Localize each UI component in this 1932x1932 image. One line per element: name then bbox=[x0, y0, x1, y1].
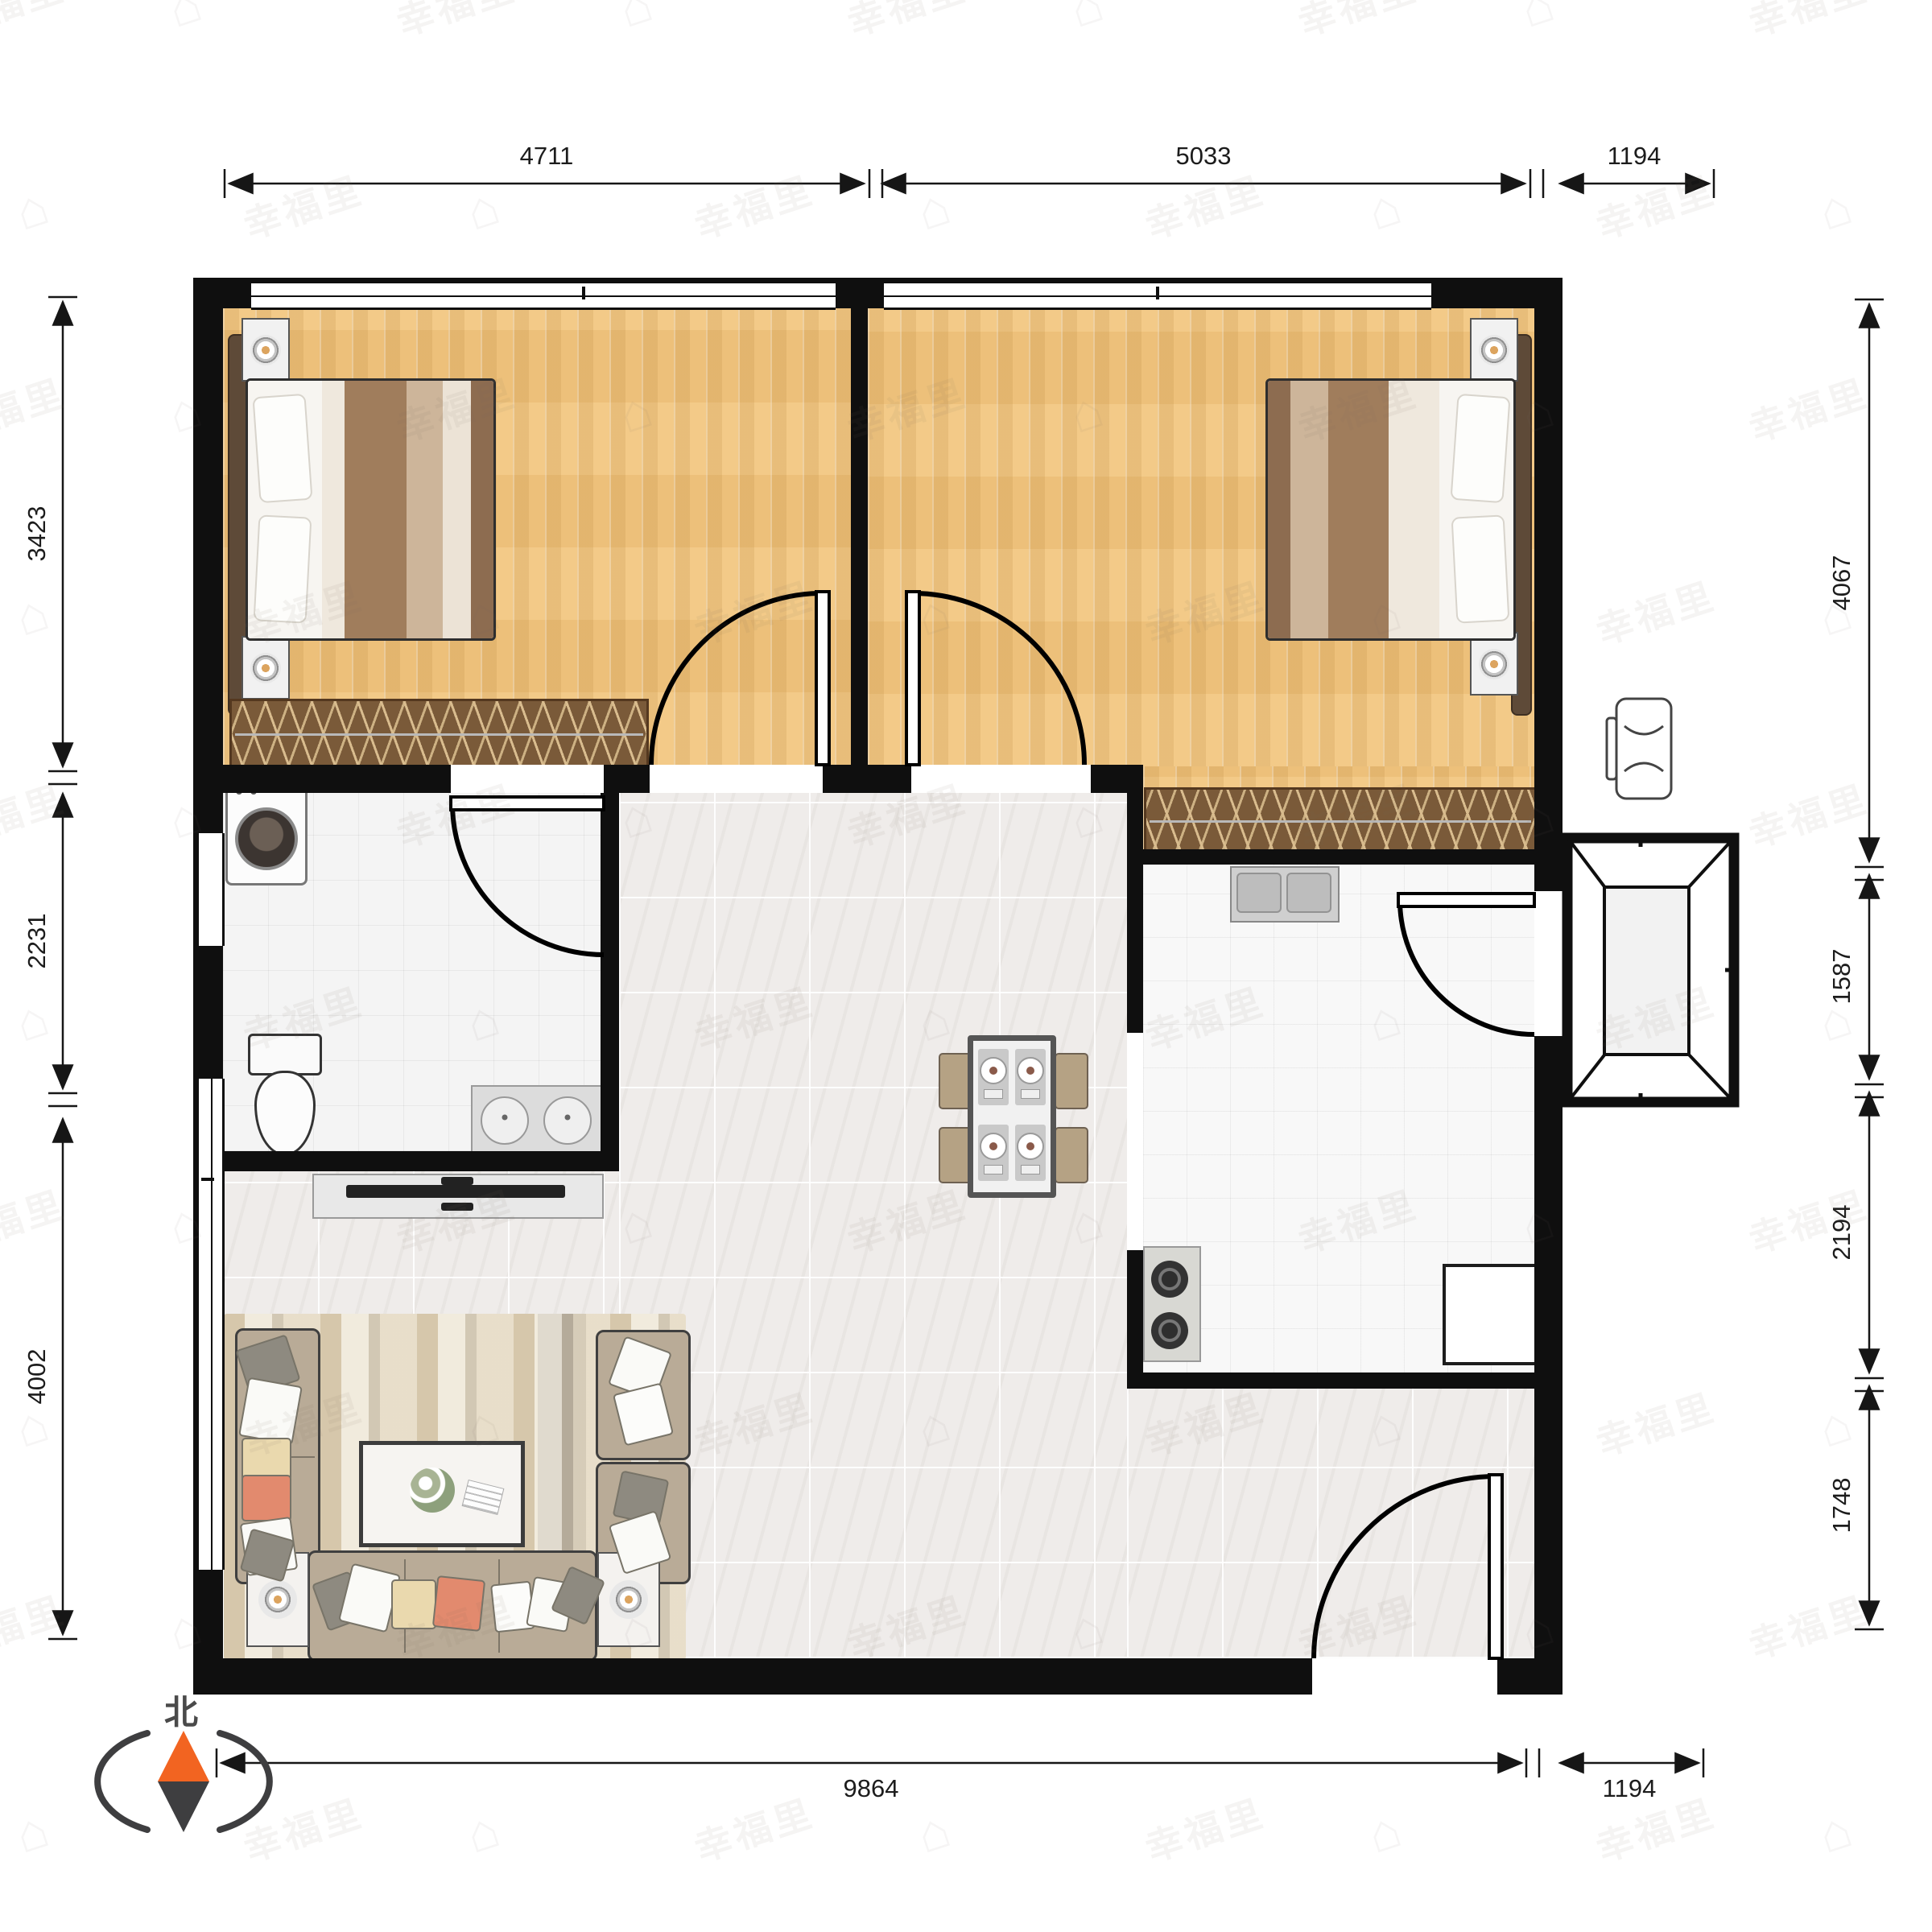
watermark-text: 幸福里 bbox=[1138, 161, 1272, 250]
watermark-logo-icon: ⌂ bbox=[1811, 1392, 1863, 1459]
plate-icon bbox=[1017, 1057, 1044, 1084]
dim-label-right-4: 1748 bbox=[1827, 1478, 1856, 1534]
watermark-text: 幸福里 bbox=[1742, 364, 1876, 452]
watermark-text: 幸福里 bbox=[1742, 1581, 1876, 1670]
watermark-text: 幸福里 bbox=[1589, 972, 1723, 1061]
watermark-text: 幸福里 bbox=[1589, 567, 1723, 655]
throw-pillow bbox=[238, 1377, 303, 1446]
bed-1-nightstand-bottom bbox=[242, 636, 290, 700]
toilet-tank bbox=[248, 1034, 322, 1075]
lamp-icon bbox=[258, 1580, 297, 1619]
bedroom-1-door-opening bbox=[650, 765, 823, 793]
compass-south-needle bbox=[158, 1781, 209, 1832]
compass bbox=[97, 1731, 270, 1832]
watermark-text: 幸福里 bbox=[1589, 161, 1723, 250]
watermark-text: 幸福里 bbox=[687, 1784, 821, 1872]
pillow bbox=[1451, 514, 1510, 623]
lamp-icon bbox=[609, 1580, 648, 1619]
dim-label-right-1: 4067 bbox=[1827, 555, 1856, 611]
entry-floor bbox=[1127, 1389, 1534, 1658]
placemat bbox=[978, 1049, 1009, 1105]
dim-label-left-2: 2231 bbox=[23, 914, 52, 969]
dimension-lines-right bbox=[1855, 299, 1884, 1629]
dining-chair bbox=[1055, 1053, 1088, 1109]
watermark-text: 幸福里 bbox=[390, 0, 523, 47]
pillow bbox=[254, 514, 312, 623]
bed-2-nightstand-bottom bbox=[1470, 632, 1518, 696]
wall-bedroom-divider bbox=[851, 278, 868, 781]
north-label: 北 bbox=[164, 1686, 198, 1735]
lamp-icon bbox=[1479, 649, 1509, 679]
window-glass-line bbox=[251, 295, 836, 297]
wall-bathroom-bottom bbox=[193, 1151, 619, 1171]
kitchen-pass-opening bbox=[1127, 1030, 1143, 1253]
dim-label-bottom-2: 1194 bbox=[1603, 1774, 1657, 1803]
watermark-text: 幸福里 bbox=[0, 770, 72, 858]
bed-2-nightstand-top bbox=[1470, 318, 1518, 382]
window-mullion bbox=[201, 1178, 214, 1181]
cup-icon bbox=[1021, 1089, 1040, 1099]
sink-basin bbox=[481, 1096, 529, 1145]
cup-icon bbox=[1021, 1165, 1040, 1174]
placemat bbox=[978, 1125, 1009, 1181]
watermark-text: 幸福里 bbox=[237, 1784, 370, 1872]
watermark-logo-icon: ⌂ bbox=[8, 986, 60, 1054]
watermark-logo-icon: ⌂ bbox=[459, 175, 510, 242]
watermark-text: 幸福里 bbox=[1589, 1378, 1723, 1467]
hallway-floor bbox=[619, 793, 1127, 1658]
wardrobe-rod bbox=[235, 733, 643, 736]
gas-stove bbox=[1143, 1246, 1201, 1362]
watermark-logo-icon: ⌂ bbox=[910, 1798, 961, 1865]
placemat bbox=[1015, 1125, 1046, 1181]
dim-label-right-3: 2194 bbox=[1827, 1205, 1856, 1261]
watermark-logo-icon: ⌂ bbox=[8, 1798, 60, 1865]
lamp-icon bbox=[1479, 335, 1509, 365]
watermark-logo-icon: ⌂ bbox=[1513, 0, 1565, 39]
dim-label-top-3: 1194 bbox=[1608, 142, 1662, 171]
tv bbox=[346, 1185, 565, 1198]
flower-vase bbox=[410, 1468, 455, 1513]
tv-stand-base bbox=[441, 1203, 473, 1211]
pillow bbox=[252, 394, 312, 503]
watermark-logo-icon: ⌂ bbox=[8, 580, 60, 648]
tv-stand-base bbox=[441, 1177, 473, 1185]
watermark-text: 幸福里 bbox=[1138, 1784, 1272, 1872]
dining-chair bbox=[1055, 1127, 1088, 1183]
watermark-logo-icon: ⌂ bbox=[1360, 1798, 1412, 1865]
wall-kitchen-step bbox=[1127, 765, 1143, 865]
watermark-text: 幸福里 bbox=[1742, 770, 1876, 858]
bedroom-2-wardrobe bbox=[1144, 787, 1537, 852]
bay-window bbox=[1567, 833, 1739, 1107]
dimension-lines-left bbox=[48, 297, 77, 1639]
watermark-text: 幸福里 bbox=[0, 1581, 72, 1670]
dim-label-left-1: 3423 bbox=[23, 506, 52, 562]
watermark-logo-icon: ⌂ bbox=[910, 175, 961, 242]
dim-label-right-2: 1587 bbox=[1827, 949, 1856, 1005]
bedroom-1-window bbox=[251, 281, 836, 310]
magazine bbox=[462, 1480, 505, 1515]
watermark-text: 幸福里 bbox=[0, 364, 72, 452]
bed-2 bbox=[1265, 378, 1516, 641]
watermark-text: 幸福里 bbox=[0, 0, 72, 47]
dim-label-top-2: 5033 bbox=[1176, 142, 1232, 171]
watermark-text: 幸福里 bbox=[0, 1175, 72, 1264]
tv-console bbox=[312, 1174, 604, 1219]
watermark-logo-icon: ⌂ bbox=[1811, 1798, 1863, 1865]
coffee-table bbox=[359, 1441, 525, 1547]
throw-pillow bbox=[432, 1575, 485, 1632]
floor-plan-canvas: 4711 5033 1194 9864 1194 3423 2231 4002 … bbox=[0, 0, 1932, 1932]
dim-label-top-1: 4711 bbox=[520, 142, 574, 171]
bathroom-door-opening bbox=[451, 765, 604, 793]
watermark-logo-icon: ⌂ bbox=[1360, 175, 1412, 242]
burner-icon bbox=[1151, 1261, 1188, 1298]
burner-icon bbox=[1151, 1312, 1188, 1349]
wall-kitchen-bottom bbox=[1127, 1373, 1563, 1389]
plate-icon bbox=[980, 1133, 1007, 1160]
bed-2-pillow-zone bbox=[1439, 381, 1513, 638]
watermark-logo-icon: ⌂ bbox=[1811, 175, 1863, 242]
bed-1-pillow-zone bbox=[248, 381, 322, 638]
dim-label-left-3: 4002 bbox=[23, 1349, 52, 1405]
balcony-door-opening bbox=[1534, 891, 1563, 1036]
bed-1 bbox=[246, 378, 496, 641]
bedroom-2-door-opening bbox=[911, 765, 1091, 793]
bed-1-blanket bbox=[322, 381, 493, 638]
entry-door-opening bbox=[1312, 1658, 1497, 1695]
refrigerator bbox=[1443, 1264, 1538, 1365]
living-room-window bbox=[196, 1079, 225, 1570]
watermark-logo-icon: ⌂ bbox=[459, 1798, 510, 1865]
window-mullion bbox=[1156, 287, 1159, 299]
watermark-text: 幸福里 bbox=[1291, 0, 1425, 47]
dining-table bbox=[968, 1035, 1056, 1198]
bathroom-vanity bbox=[471, 1085, 604, 1156]
plate-icon bbox=[980, 1057, 1007, 1084]
watermark-logo-icon: ⌂ bbox=[161, 0, 213, 39]
wall-bathroom-right bbox=[601, 765, 619, 1171]
wall-kitchen-top bbox=[1143, 849, 1534, 865]
bed-2-blanket bbox=[1268, 381, 1439, 638]
watermark-text: 幸福里 bbox=[687, 161, 821, 250]
kitchen-sink-basin bbox=[1286, 873, 1331, 913]
placemat bbox=[1015, 1049, 1046, 1105]
wardrobe-rod bbox=[1150, 820, 1531, 823]
dimension-lines-bottom bbox=[217, 1748, 1703, 1777]
bathroom-window bbox=[196, 833, 225, 946]
window-mullion bbox=[582, 287, 585, 299]
window-glass-line bbox=[211, 1079, 213, 1570]
bedroom-1-wardrobe bbox=[229, 699, 649, 768]
watermark-text: 幸福里 bbox=[1742, 0, 1876, 47]
cup-icon bbox=[984, 1165, 1003, 1174]
faucet-icon bbox=[502, 1114, 508, 1120]
dimension-lines-top bbox=[225, 169, 1714, 198]
sink-basin bbox=[543, 1096, 592, 1145]
watermark-logo-icon: ⌂ bbox=[8, 175, 60, 242]
kitchen-sink-basin bbox=[1236, 873, 1282, 913]
pillow bbox=[1450, 394, 1510, 503]
washing-machine bbox=[225, 779, 308, 885]
plate-icon bbox=[1017, 1133, 1044, 1160]
throw-pillow bbox=[242, 1475, 291, 1521]
watermark-text: 幸福里 bbox=[237, 161, 370, 250]
bed-1-nightstand-top bbox=[242, 318, 290, 382]
watermark-logo-icon: ⌂ bbox=[1063, 0, 1114, 39]
desk-chair bbox=[1607, 699, 1671, 799]
cup-icon bbox=[984, 1089, 1003, 1099]
faucet-icon bbox=[565, 1114, 571, 1120]
throw-pillow bbox=[391, 1579, 436, 1629]
lamp-icon bbox=[250, 653, 281, 683]
dim-label-bottom-1: 9864 bbox=[844, 1774, 899, 1803]
watermark-text: 幸福里 bbox=[840, 0, 974, 47]
compass-north-needle bbox=[158, 1731, 209, 1781]
washer-drum bbox=[235, 807, 298, 870]
kitchen-sink bbox=[1230, 866, 1340, 923]
watermark-logo-icon: ⌂ bbox=[612, 0, 663, 39]
lamp-icon bbox=[250, 335, 281, 365]
